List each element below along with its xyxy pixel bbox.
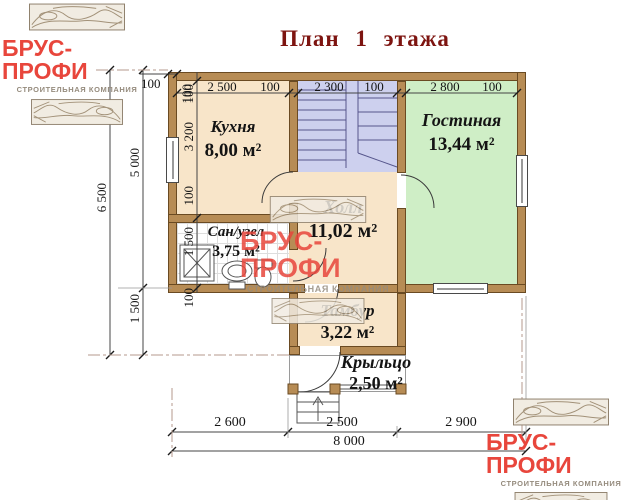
wall-tambur-bottom-a (289, 346, 300, 355)
label-kitchen: Кухня 8,00 м² (177, 117, 289, 161)
wood-plank-icon (513, 398, 609, 426)
logo-top-left: БРУС-ПРОФИ СТРОИТЕЛЬНАЯ КОМПАНИЯ (2, 2, 152, 126)
watermark-company-name: БРУС-ПРОФИ (240, 228, 396, 282)
logo-bottom-right: БРУС-ПРОФИ СТРОИТЕЛЬНАЯ КОМПАНИЯ (486, 398, 636, 500)
dim-left-total: 6 500 (94, 183, 110, 212)
room-name: Гостиная (406, 110, 517, 131)
dim-bottom-0: 2 600 (198, 415, 262, 431)
room-area: 13,44 м² (406, 134, 517, 156)
window-glass (437, 288, 484, 290)
wood-plank-icon (31, 98, 123, 126)
watermark-company-subtitle: СТРОИТЕЛЬНАЯ КОМПАНИЯ (247, 285, 389, 294)
dim-bottom-2: 2 900 (428, 415, 494, 431)
company-name: БРУС-ПРОФИ (2, 37, 152, 83)
company-name: БРУС-ПРОФИ (486, 431, 636, 477)
dim-bottom-1: 2 500 (310, 415, 374, 431)
room-name: Кухня (177, 117, 289, 137)
dim-bottom-total: 8 000 (299, 434, 399, 450)
wood-plank-icon (269, 298, 367, 324)
wall-kitchen-stairs (289, 81, 298, 172)
dim-left-upper: 5 000 (127, 148, 143, 177)
label-living: Гостиная 13,44 м² (406, 110, 517, 156)
dim-left-inner-4: 100 (181, 288, 197, 308)
dim-left-lower: 1 500 (127, 294, 143, 323)
dim-left-inner-0: 100 (181, 84, 197, 104)
room-name: Крыльцо (322, 352, 430, 373)
room-area: 3,22 м² (298, 322, 397, 343)
dim-top-1: 2 500 (193, 79, 251, 95)
window-living-right (516, 155, 528, 207)
company-subtitle: СТРОИТЕЛЬНАЯ КОМПАНИЯ (17, 86, 138, 94)
window-glass (521, 159, 523, 203)
company-subtitle: СТРОИТЕЛЬНАЯ КОМПАНИЯ (501, 480, 622, 488)
wall-hall-living (397, 208, 406, 293)
watermark-logo: БРУС-ПРОФИ СТРОИТЕЛЬНАЯ КОМПАНИЯ (240, 196, 396, 324)
wood-plank-icon (29, 2, 125, 32)
dim-top-3: 2 300 (299, 79, 359, 95)
window-glass (172, 141, 174, 179)
page-title: План 1 этажа (240, 26, 490, 52)
dim-top-5: 2 800 (413, 79, 477, 95)
room-area: 8,00 м² (177, 140, 289, 162)
dim-left-inner-2: 100 (181, 186, 197, 206)
room-area: 2,50 м² (322, 373, 430, 394)
floor-plan-drawing: План 1 этажа (0, 0, 636, 500)
window-living-bottom (433, 283, 488, 294)
dim-top-6: 100 (474, 79, 510, 95)
wood-plank-icon (269, 196, 367, 223)
label-porch: Крыльцо 2,50 м² (322, 352, 430, 393)
dim-top-4: 100 (356, 79, 392, 95)
wall-stairs-living (397, 81, 406, 173)
dim-top-2: 100 (252, 79, 288, 95)
wood-plank-icon (513, 492, 609, 500)
